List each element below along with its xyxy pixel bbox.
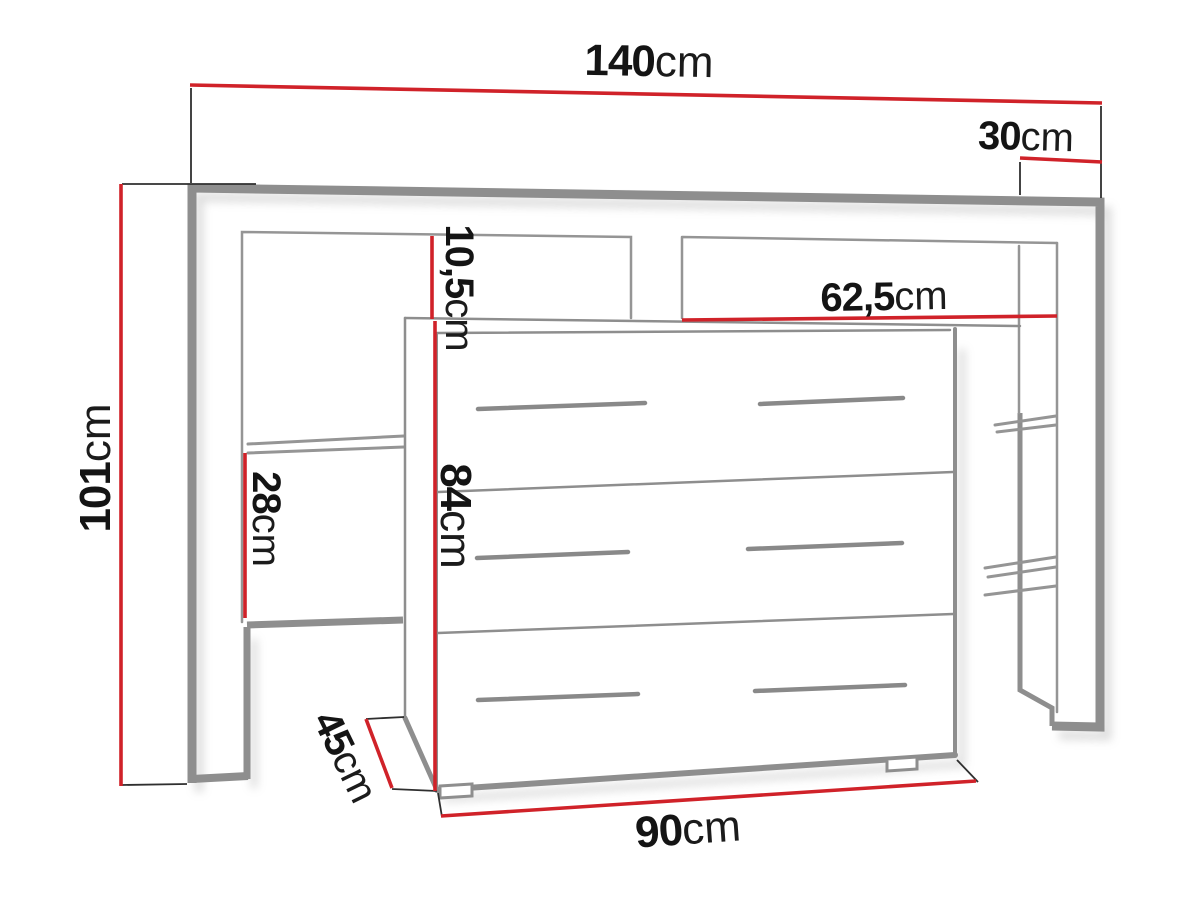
dresser-right-foot [887,757,917,771]
dim-unit: cm [1020,115,1074,160]
dim-value: 28 [244,471,288,514]
dim-unit: cm [437,298,481,351]
ext-45-bottom [392,789,437,791]
dim-value: 62,5 [820,275,895,320]
dim-label-side-depth: 30cm [978,116,1075,158]
dresser [405,318,1020,798]
dim-line-total-width [190,85,1102,103]
dim-value: 30 [978,114,1022,159]
dim-label-dresser-height: 84cm [433,463,477,569]
dim-value: 90 [634,805,684,857]
dim-label-total-height: 101cm [74,403,118,532]
dim-unit: cm [431,510,480,569]
dim-unit: cm [894,274,948,319]
left-leg-bottom [192,776,248,779]
dim-label-total-width: 140cm [584,39,714,85]
dim-unit: cm [244,514,288,567]
left-compartment-bottom [247,620,403,625]
ext-45-top [366,717,404,719]
dim-label-shelf-opening: 28cm [246,471,286,567]
dresser-left-foot [440,784,472,798]
dim-value: 10,5 [437,224,481,298]
diagram-canvas: 140cm 30cm 101cm 10,5cm 62,5cm 28cm 84cm… [0,0,1200,899]
ext-101-bottom [122,784,187,785]
dim-label-dresser-width: 90cm [634,804,742,855]
dim-unit: cm [654,37,714,87]
dim-unit: cm [680,801,742,854]
dim-value: 140 [584,36,655,86]
dim-label-niche-width: 62,5cm [820,276,948,318]
ext-90-right [957,760,978,782]
dim-unit: cm [71,403,120,462]
left-shelf [248,436,404,453]
dim-label-niche-gap: 10,5cm [439,224,479,351]
right-shelf-upper [995,416,1056,432]
dim-value: 101 [71,462,120,532]
dim-value: 84 [431,463,480,510]
